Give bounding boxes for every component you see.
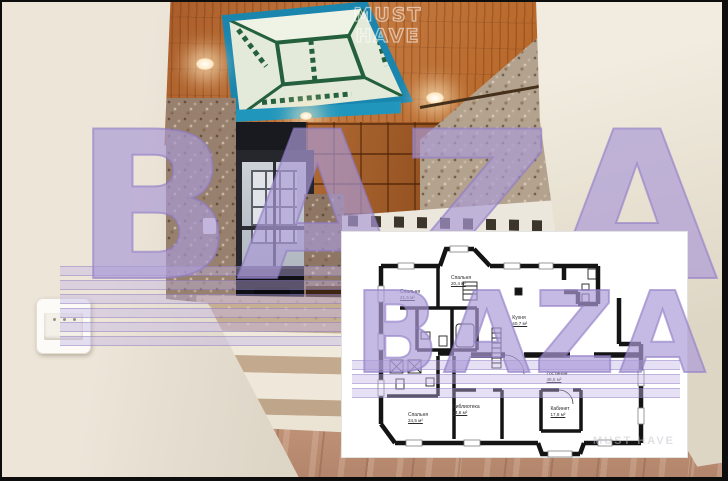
door-mullion: [273, 162, 276, 266]
wall-socket: [203, 218, 216, 234]
door-rail: [242, 226, 306, 230]
real-estate-listing-photo: BAZA MUST HAVE: [0, 0, 728, 481]
recessed-light: [196, 58, 214, 70]
room-label: Библиотека 14,6 м²: [452, 404, 479, 410]
light-switch-rocker: [44, 313, 83, 340]
frame-edge: [0, 0, 2, 481]
recessed-light: [300, 112, 312, 120]
frame-edge: [722, 0, 728, 481]
parapet-cutouts: [348, 215, 554, 231]
glass-doors: [236, 150, 314, 319]
plan-watermark-brand-text: BAZA: [354, 278, 710, 390]
floor-plan-inset: Спальня 21,5 м² Спальня 20,4 м² Кухня 40…: [341, 231, 688, 458]
light-switch: [36, 298, 91, 354]
room-label: Кабинет 17,8 м²: [550, 406, 569, 412]
glass-pane: [242, 162, 306, 266]
frame-edge: [0, 477, 728, 481]
must-have-watermark: MUST HAVE: [350, 5, 426, 53]
plan-corner-brand: MUST HAVE: [593, 435, 675, 447]
room-label: Спальня 24,5 м²: [408, 412, 428, 418]
frame-edge: [0, 0, 728, 2]
